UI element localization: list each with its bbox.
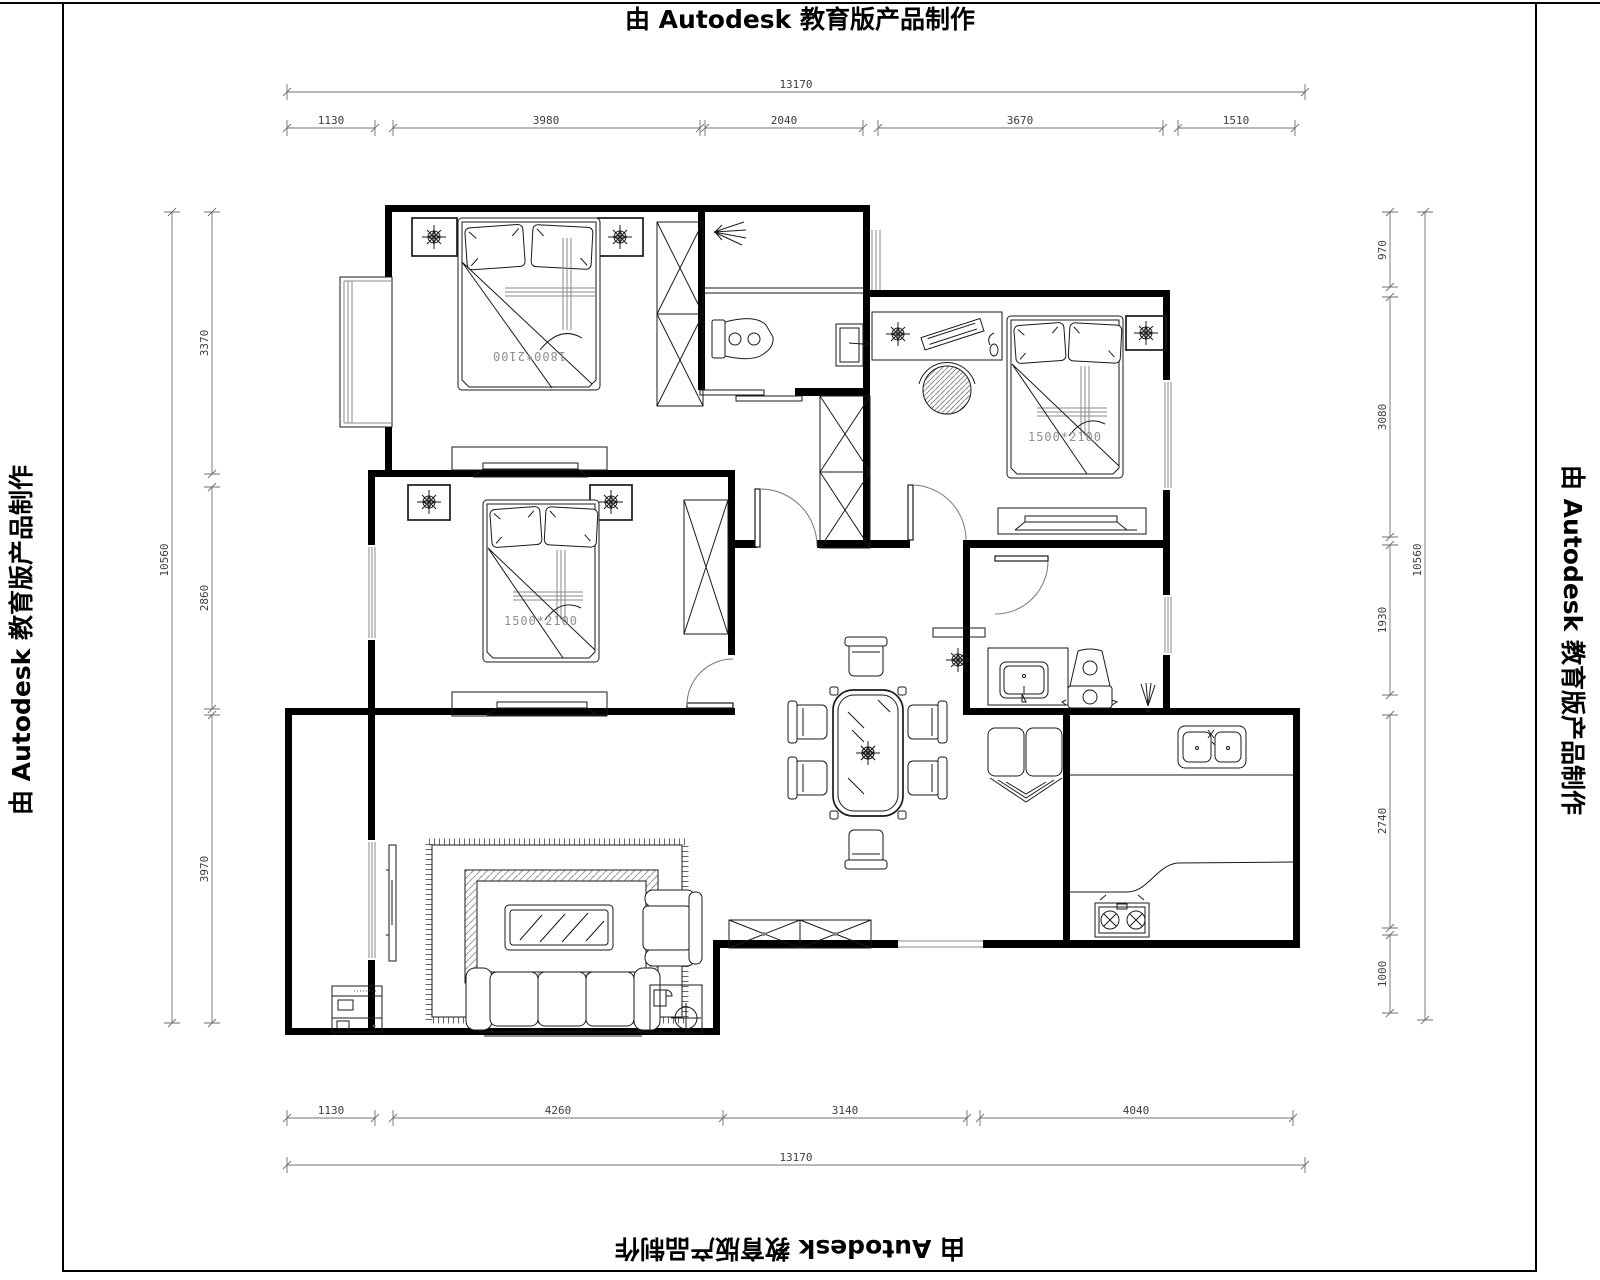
dining-chair (908, 701, 947, 743)
wardrobe-second (684, 500, 728, 634)
desk (872, 312, 1002, 360)
dim-left-3: 3970 (198, 856, 211, 883)
drawing-sheet: 由 Autodesk 教育版产品制作 由 Autodesk 教育版产品制作 由 … (0, 0, 1600, 1280)
dim-bottom-1: 1130 (318, 1104, 345, 1117)
bedroom-second-door (687, 659, 733, 708)
bed-second (483, 500, 599, 662)
bedroom-second-window (369, 547, 375, 638)
compass-flower-icon (599, 490, 623, 514)
bedroom-third-window (1165, 382, 1171, 488)
bathroom-main (705, 222, 869, 366)
dim-top-4: 3670 (1007, 114, 1034, 127)
dining-chair (788, 701, 827, 743)
vanity (988, 648, 1068, 705)
stove-icon (1095, 895, 1149, 937)
dim-right-3: 1930 (1376, 607, 1389, 634)
dim-left-2: 2860 (198, 585, 211, 612)
desk-chair (919, 363, 975, 414)
hall-cabinet (820, 396, 870, 548)
bedroom-second: 1500*2100 (408, 485, 728, 716)
dim-right-4: 2740 (1376, 808, 1389, 835)
compass-flower-icon (417, 490, 441, 514)
balcony-window (369, 842, 375, 958)
dim-left-1: 3370 (198, 330, 211, 357)
table-flower-icon (856, 741, 880, 765)
dining-chair (845, 637, 887, 676)
dim-right-5: 1000 (1376, 961, 1389, 988)
wardrobe-master (657, 222, 703, 406)
living-room (386, 842, 702, 1036)
coffee-table (505, 905, 613, 950)
kitchen (988, 726, 1293, 937)
bed-size-label: 1500*2100 (504, 614, 578, 628)
floor-plan-canvas: 13170 1130 3980 2040 3670 1510 1130 4260… (0, 0, 1600, 1280)
compass-flower-icon (1134, 321, 1158, 345)
sofa (466, 968, 660, 1036)
dim-bottom-2: 4260 (545, 1104, 572, 1117)
dim-right-1: 970 (1376, 240, 1389, 260)
dim-top-overall: 13170 (779, 78, 812, 91)
bedroom-master: 1800*2100 (412, 218, 703, 477)
dimension-annotations: 13170 1130 3980 2040 3670 1510 1130 4260… (158, 78, 1433, 1173)
dim-left-overall: 10560 (158, 543, 171, 576)
bedroom-third-door (908, 485, 966, 540)
dim-top-5: 1510 (1223, 114, 1250, 127)
counter-bottom-edge (1070, 862, 1293, 892)
entry-threshold (898, 941, 983, 947)
dim-top-3: 2040 (771, 114, 798, 127)
toilet-icon (1062, 649, 1117, 708)
dining-chair (788, 757, 827, 799)
bed-third (1007, 316, 1123, 478)
wall-tv (386, 845, 396, 961)
bed-master (458, 218, 600, 390)
compass-flower-icon (886, 322, 910, 346)
bathroom-second-door (995, 556, 1048, 614)
dim-bottom-4: 4040 (1123, 1104, 1150, 1117)
compass-flower-icon (422, 225, 446, 249)
bedroom-third: 1500*2100 (872, 312, 1166, 534)
tv-cabinet (998, 508, 1146, 534)
dim-right-overall: 10560 (1411, 543, 1424, 576)
shower-head-icon (714, 222, 746, 245)
dim-bottom-overall: 13170 (779, 1151, 812, 1164)
bay-window (340, 277, 392, 427)
bathroom-main-vent-window (872, 230, 880, 290)
bed-size-label: 1800*2100 (492, 349, 566, 363)
bathroom-second-window (1165, 597, 1171, 653)
refrigerator (988, 728, 1062, 802)
kitchen-sink-icon (1178, 726, 1246, 768)
dim-bottom-3: 3140 (832, 1104, 859, 1117)
hall-corridor-door (755, 489, 817, 547)
dining-area (729, 628, 985, 948)
compass-flower-icon (608, 225, 632, 249)
toilet-icon (712, 319, 773, 359)
dining-table (830, 687, 906, 819)
floor-drain-icon (1141, 683, 1155, 712)
wall-shelf (933, 628, 985, 637)
dim-top-1: 1130 (318, 114, 345, 127)
dim-top-2: 3980 (533, 114, 560, 127)
dining-chair (845, 830, 887, 869)
armchair (643, 890, 702, 966)
bathroom-main-sliding-door (700, 390, 802, 401)
dining-chair (908, 757, 947, 799)
bathroom-second (988, 648, 1155, 712)
dim-right-2: 3080 (1376, 404, 1389, 431)
bed-size-label: 1500*2100 (1028, 430, 1102, 444)
